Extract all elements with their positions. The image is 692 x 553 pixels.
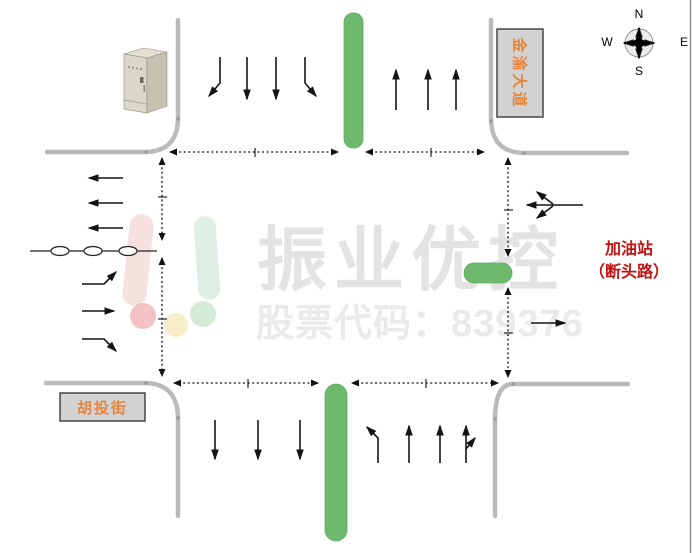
- sign-plate-north-road: [497, 29, 543, 117]
- west-exit-arrows: [89, 178, 123, 228]
- diagram-graphics: [0, 0, 692, 553]
- watermark-logo: [121, 213, 221, 337]
- west-approach-arrows: [82, 272, 116, 351]
- road-curb-se: [495, 384, 628, 516]
- south-approach-arrows: [367, 426, 475, 463]
- compass-icon: [624, 28, 654, 58]
- median-south: [325, 384, 347, 541]
- north-approach-arrows: [209, 57, 316, 99]
- intersection-diagram: 振业优控 股票代码：839376: [0, 0, 692, 553]
- sign-plate-west-road: [60, 393, 145, 421]
- median-east: [464, 263, 512, 283]
- north-exit-arrows: [396, 70, 456, 110]
- signal-cabinet-icon: [124, 48, 167, 113]
- median-north: [344, 13, 363, 148]
- south-exit-arrows: [215, 420, 300, 459]
- east-approach-arrows: [527, 192, 583, 218]
